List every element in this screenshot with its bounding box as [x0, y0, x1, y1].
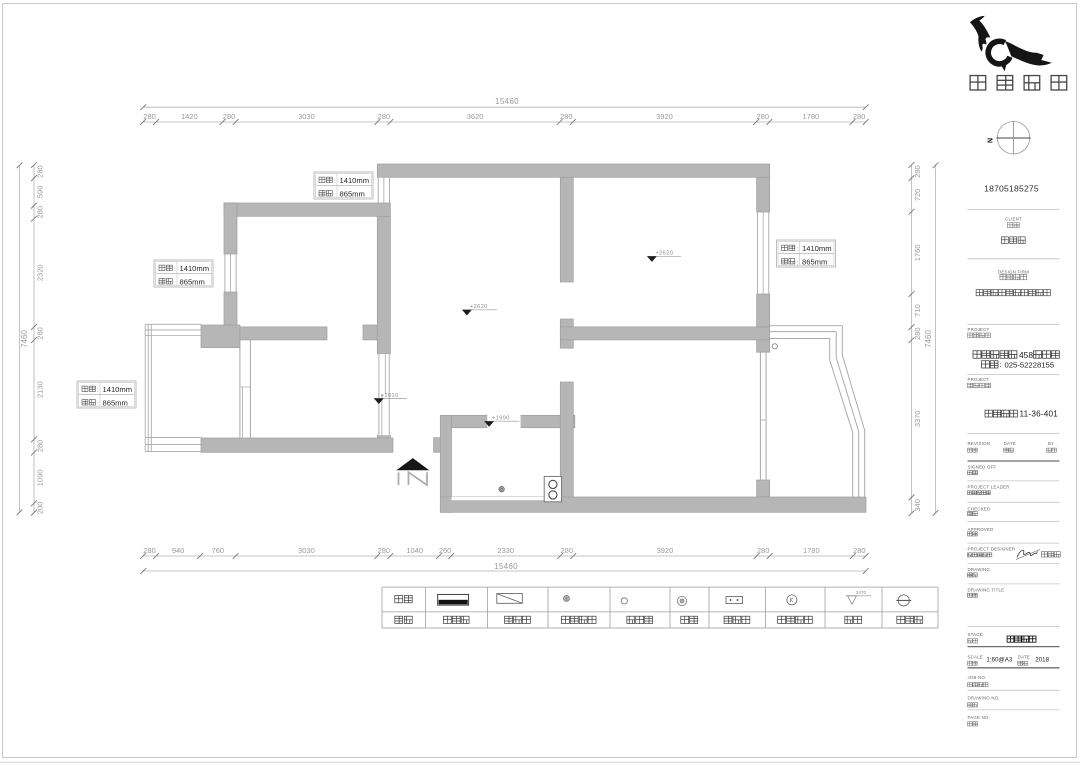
svg-text:7460: 7460 — [20, 330, 29, 348]
svg-text:280: 280 — [853, 112, 866, 121]
svg-text:865mm: 865mm — [340, 190, 365, 199]
svg-text::: : — [797, 246, 799, 253]
svg-text:280: 280 — [36, 440, 45, 453]
svg-text:280: 280 — [853, 546, 866, 555]
svg-text:11-36-401: 11-36-401 — [1020, 410, 1059, 419]
svg-text::: : — [174, 266, 176, 273]
svg-text:2320: 2320 — [36, 264, 45, 281]
svg-text:2470: 2470 — [856, 590, 867, 595]
svg-text:DRAWING NO.: DRAWING NO. — [968, 695, 1000, 700]
svg-text:2130: 2130 — [36, 381, 45, 398]
svg-text:STAGE: STAGE — [968, 632, 984, 637]
svg-text:865mm: 865mm — [103, 399, 128, 408]
svg-text::: : — [797, 259, 799, 266]
svg-text:3620: 3620 — [467, 112, 484, 121]
svg-text:PAGE NO.: PAGE NO. — [968, 715, 991, 720]
svg-text:280: 280 — [560, 546, 573, 555]
svg-text:DATE: DATE — [1018, 654, 1030, 659]
svg-text:PROJECT: PROJECT — [968, 377, 990, 382]
svg-text:DRAWING: DRAWING — [968, 567, 991, 572]
svg-text:280: 280 — [756, 112, 769, 121]
svg-text:+2620: +2620 — [470, 304, 488, 310]
svg-text:280: 280 — [560, 112, 573, 121]
svg-text:280: 280 — [913, 165, 922, 178]
svg-text:260: 260 — [439, 546, 452, 555]
svg-text::: : — [1000, 362, 1002, 369]
svg-text:1420: 1420 — [181, 112, 198, 121]
svg-text:APPROVED: APPROVED — [968, 527, 994, 532]
svg-text:PROJECT DESIGNER: PROJECT DESIGNER — [968, 547, 1016, 552]
svg-text:720: 720 — [913, 189, 922, 202]
svg-text:340: 340 — [913, 499, 922, 512]
svg-text:280: 280 — [223, 112, 236, 121]
svg-text:280: 280 — [378, 112, 391, 121]
svg-text:DESIGN FIRM: DESIGN FIRM — [998, 270, 1029, 275]
svg-text::: : — [174, 279, 176, 286]
svg-text:N: N — [988, 138, 995, 143]
svg-text:2018: 2018 — [1035, 657, 1049, 664]
svg-text:3370: 3370 — [913, 410, 922, 427]
svg-text:3920: 3920 — [657, 546, 674, 555]
svg-text:15460: 15460 — [495, 97, 519, 106]
svg-text:18705185275: 18705185275 — [984, 183, 1039, 193]
svg-text:3920: 3920 — [656, 112, 673, 121]
svg-text:1760: 1760 — [913, 245, 922, 262]
svg-text:200: 200 — [36, 502, 45, 515]
svg-text:1410mm: 1410mm — [103, 385, 133, 394]
svg-text:280: 280 — [757, 546, 770, 555]
svg-text::: : — [334, 191, 336, 198]
svg-text:CLIENT: CLIENT — [1005, 217, 1022, 222]
svg-text:025-52228155: 025-52228155 — [1005, 361, 1055, 370]
svg-text:+2620: +2620 — [656, 251, 674, 257]
svg-text:590: 590 — [36, 186, 45, 199]
svg-text:710: 710 — [913, 304, 922, 317]
svg-text:2330: 2330 — [497, 546, 514, 555]
svg-text:1780: 1780 — [803, 546, 820, 555]
svg-text::: : — [97, 400, 99, 407]
svg-text::: : — [334, 178, 336, 185]
svg-text:280: 280 — [143, 546, 156, 555]
svg-text:15460: 15460 — [494, 562, 518, 571]
svg-text:280: 280 — [378, 546, 391, 555]
svg-text:SCALE: SCALE — [968, 654, 983, 659]
svg-text:280: 280 — [913, 327, 922, 340]
svg-text:1090: 1090 — [36, 470, 45, 487]
svg-text:JOB NO.: JOB NO. — [968, 675, 987, 680]
svg-text:865mm: 865mm — [180, 278, 205, 287]
svg-text:940: 940 — [172, 546, 185, 555]
svg-text:SIGNED OFF: SIGNED OFF — [968, 464, 997, 469]
svg-text:PROJECT: PROJECT — [968, 327, 990, 332]
svg-text:280: 280 — [36, 165, 45, 178]
svg-text:1:60@A3: 1:60@A3 — [986, 657, 1012, 664]
svg-text:3030: 3030 — [298, 546, 315, 555]
svg-text:1410mm: 1410mm — [340, 176, 370, 185]
svg-text:+1990: +1990 — [492, 416, 510, 422]
svg-text:CHECKED: CHECKED — [968, 507, 991, 512]
svg-text:760: 760 — [212, 546, 225, 555]
svg-text:PROJECT LEADER: PROJECT LEADER — [968, 484, 1010, 489]
svg-text:1780: 1780 — [803, 112, 820, 121]
svg-text:7460: 7460 — [924, 330, 933, 348]
svg-text:280: 280 — [143, 112, 156, 121]
svg-text:DRAWING TITLE: DRAWING TITLE — [968, 587, 1005, 592]
svg-text:1410mm: 1410mm — [802, 244, 832, 253]
svg-text:865mm: 865mm — [802, 258, 827, 267]
svg-text:458: 458 — [1019, 350, 1033, 360]
svg-text:280: 280 — [36, 327, 45, 340]
svg-text:+2010: +2010 — [381, 393, 399, 399]
svg-text:REVISION: REVISION — [968, 441, 991, 446]
svg-text:DATE: DATE — [1004, 441, 1016, 446]
svg-text:3030: 3030 — [298, 112, 315, 121]
svg-text:1040: 1040 — [406, 546, 423, 555]
svg-text:1410mm: 1410mm — [180, 264, 210, 273]
svg-text:280: 280 — [36, 206, 45, 219]
svg-text:BY: BY — [1048, 441, 1054, 446]
svg-text::: : — [97, 387, 99, 394]
